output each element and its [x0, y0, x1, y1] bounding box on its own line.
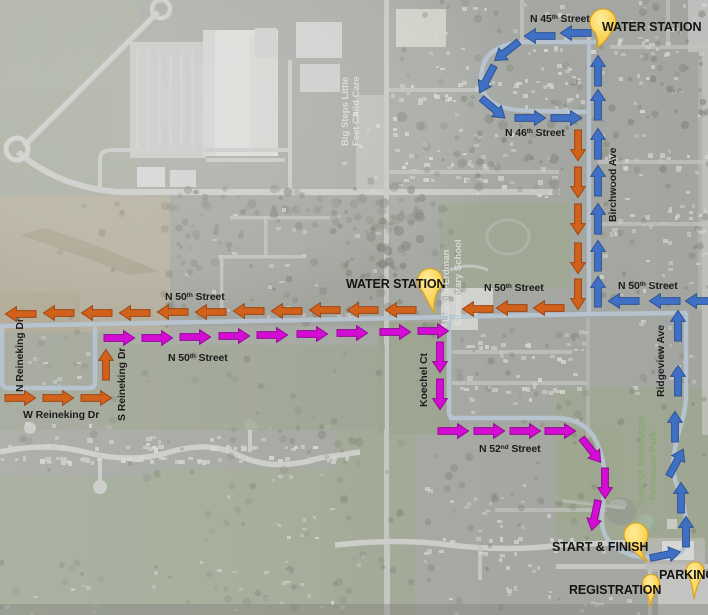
- svg-text:Lincoln-Erdman: Lincoln-Erdman: [441, 249, 452, 322]
- svg-text:Elementary School: Elementary School: [453, 239, 464, 325]
- svg-text:N Reineking Dr: N Reineking Dr: [14, 318, 26, 392]
- svg-text:PARKING: PARKING: [659, 568, 708, 582]
- svg-text:Big Steps Little: Big Steps Little: [340, 77, 351, 146]
- svg-text:Koechel Ct: Koechel Ct: [418, 353, 430, 407]
- svg-text:N 52nd Street: N 52nd Street: [479, 443, 541, 455]
- svg-text:N 45th Street: N 45th Street: [530, 13, 590, 25]
- svg-text:N 50th Street: N 50th Street: [484, 282, 544, 294]
- svg-text:WATER STATION: WATER STATION: [602, 20, 701, 34]
- svg-text:Firehouse Park: Firehouse Park: [648, 431, 659, 500]
- svg-text:W Reineking Dr: W Reineking Dr: [23, 409, 99, 421]
- svg-text:START & FINISH: START & FINISH: [552, 540, 648, 554]
- svg-text:S Reineking Dr: S Reineking Dr: [116, 348, 128, 421]
- svg-text:REGISTRATION: REGISTRATION: [569, 583, 661, 597]
- svg-text:N 46th Street: N 46th Street: [505, 127, 565, 139]
- svg-text:Ridgeview Ave: Ridgeview Ave: [655, 325, 667, 397]
- svg-text:WATER STATION: WATER STATION: [346, 277, 445, 291]
- svg-text:Feet Child Care: Feet Child Care: [351, 76, 362, 146]
- svg-text:Town Of Sheboygan: Town Of Sheboygan: [636, 416, 647, 507]
- svg-text:N 50th Street: N 50th Street: [165, 291, 225, 303]
- svg-text:Birchwood Ave: Birchwood Ave: [607, 147, 619, 222]
- svg-text:N 50th Street: N 50th Street: [168, 352, 228, 364]
- svg-text:N 50th Street: N 50th Street: [618, 280, 678, 292]
